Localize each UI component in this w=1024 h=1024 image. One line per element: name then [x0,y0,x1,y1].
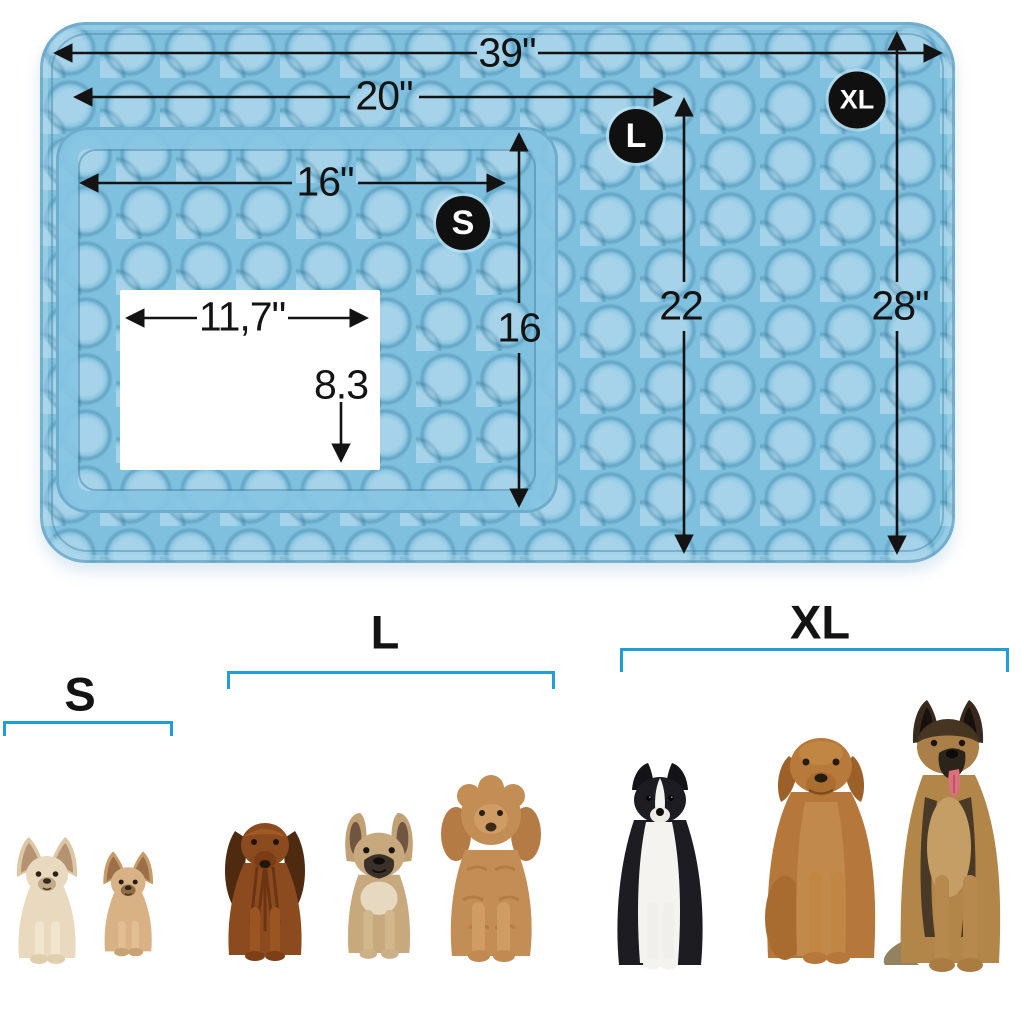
dog-dachshund-illustration [213,803,317,963]
dog-labrador-illustration [745,720,889,970]
badge-xl: XL [829,72,886,129]
l-width-label: 20" [355,76,412,117]
bracket-xl [620,648,1009,672]
s-width-label: 16" [296,162,353,203]
badge-s: S [436,196,490,250]
paper-height-label: 8.3 [314,365,368,406]
dog-poodle-illustration [437,770,545,963]
bracket-s [3,721,173,736]
dog-german-shepherd-illustration [879,697,1018,977]
l-height-label: 22 [659,286,703,327]
s-height-label: 16 [497,308,541,349]
group-label-xl: XL [790,595,850,650]
xl-height-label: 28" [871,286,928,327]
paper-width-label: 11,7" [199,297,285,338]
dog-border-collie-illustration [602,760,719,973]
xl-width-label: 39" [478,33,535,74]
group-label-l: L [371,605,400,660]
badge-l: L [609,109,663,163]
dog-tan-chihuahua-illustration [96,840,162,967]
size-guide-infographic: 39" 20" 16" 16 22 28" 11,7" 8.3 S L XL S… [0,0,1024,1024]
group-label-s: S [64,667,95,722]
dog-french-bulldog-illustration [334,805,424,962]
dog-cream-chihuahua-illustration [7,833,89,967]
bracket-l [227,671,555,689]
